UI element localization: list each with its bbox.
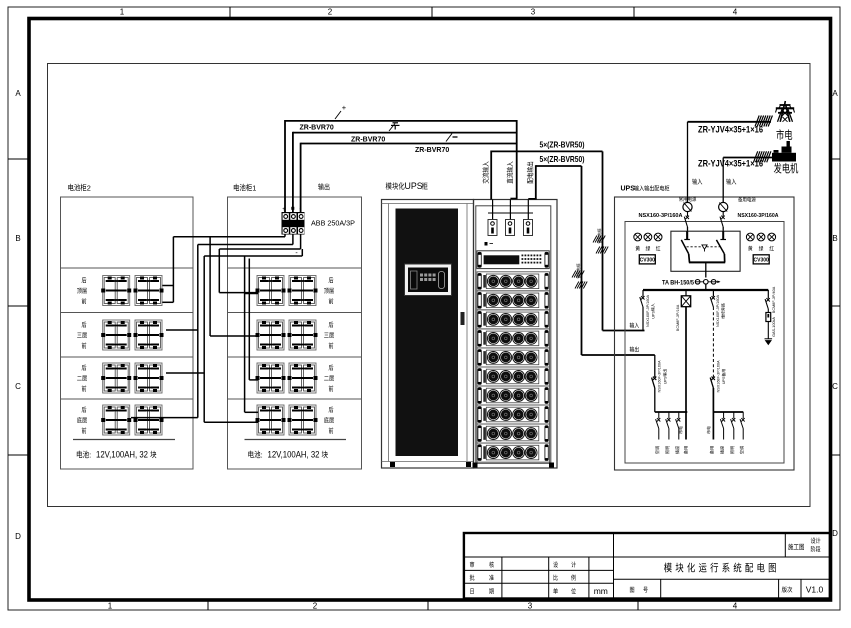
svg-text:D: D bbox=[15, 532, 21, 541]
svg-text:BCM8F-3P/16A: BCM8F-3P/16A bbox=[676, 304, 680, 331]
svg-text:2: 2 bbox=[87, 184, 91, 193]
svg-text:mm: mm bbox=[594, 586, 608, 596]
svg-text:3: 3 bbox=[528, 602, 533, 611]
svg-text:TA BH-150/5: TA BH-150/5 bbox=[662, 280, 695, 286]
svg-text:NSX160-3P/160A: NSX160-3P/160A bbox=[738, 213, 780, 219]
svg-text:UPS: UPS bbox=[663, 376, 667, 384]
svg-text:CV300: CV300 bbox=[754, 258, 770, 264]
svg-text:D: D bbox=[832, 529, 838, 538]
svg-text:A: A bbox=[15, 89, 21, 98]
svg-text:4: 4 bbox=[733, 8, 738, 17]
svg-text:NSX160-3P/160A: NSX160-3P/160A bbox=[639, 213, 684, 219]
svg-text:ZR-YJV4×35+1×16: ZR-YJV4×35+1×16 bbox=[698, 159, 763, 169]
svg-text:ZR-BVR70: ZR-BVR70 bbox=[351, 136, 385, 143]
svg-text:CV300: CV300 bbox=[640, 258, 656, 264]
svg-text:ZR-YJV4×35+1×16: ZR-YJV4×35+1×16 bbox=[698, 125, 763, 135]
svg-text:1: 1 bbox=[252, 184, 256, 193]
svg-text:B: B bbox=[832, 234, 837, 243]
svg-text:2: 2 bbox=[313, 602, 318, 611]
svg-text:4: 4 bbox=[733, 602, 738, 611]
svg-text:NSX160F-3P/160A: NSX160F-3P/160A bbox=[716, 294, 720, 327]
svg-text:NSX160F-3P/160A: NSX160F-3P/160A bbox=[658, 360, 662, 393]
svg-text:1: 1 bbox=[108, 602, 113, 611]
svg-text:C: C bbox=[15, 382, 21, 391]
svg-text:C: C bbox=[832, 382, 838, 391]
svg-text:V1.0: V1.0 bbox=[806, 585, 824, 595]
svg-text:B: B bbox=[15, 234, 20, 243]
svg-text:NSX168F-3P/160A: NSX168F-3P/160A bbox=[716, 360, 720, 393]
svg-text::: : bbox=[261, 451, 263, 460]
svg-text::: : bbox=[89, 451, 91, 460]
svg-text:A: A bbox=[832, 89, 838, 98]
svg-text:12V,100AH, 32: 12V,100AH, 32 bbox=[96, 450, 148, 460]
svg-text:3: 3 bbox=[531, 8, 536, 17]
svg-text:UPS: UPS bbox=[405, 181, 423, 191]
svg-text:UPS: UPS bbox=[651, 311, 655, 319]
svg-text:ABB 250A/3P: ABB 250A/3P bbox=[311, 219, 355, 228]
svg-text:UPS: UPS bbox=[722, 376, 726, 384]
svg-text:NSX160F-3P/160A: NSX160F-3P/160A bbox=[646, 294, 650, 327]
svg-text:2: 2 bbox=[328, 8, 333, 17]
svg-text:5×(ZR-BVR50): 5×(ZR-BVR50) bbox=[540, 139, 585, 149]
svg-text:1: 1 bbox=[120, 8, 125, 17]
svg-text:UPS: UPS bbox=[621, 186, 636, 193]
svg-text:GAS-100kA: GAS-100kA bbox=[772, 317, 776, 337]
svg-text:5×(ZR-BVR50): 5×(ZR-BVR50) bbox=[540, 154, 585, 164]
svg-text:+: + bbox=[342, 103, 347, 112]
svg-text:12V,100AH, 32: 12V,100AH, 32 bbox=[268, 450, 320, 460]
svg-text:ZR-BVR70: ZR-BVR70 bbox=[300, 125, 334, 132]
svg-text:BCM8F-3P/40A: BCM8F-3P/40A bbox=[772, 286, 776, 313]
svg-text:ZR-BVR70: ZR-BVR70 bbox=[415, 147, 449, 154]
